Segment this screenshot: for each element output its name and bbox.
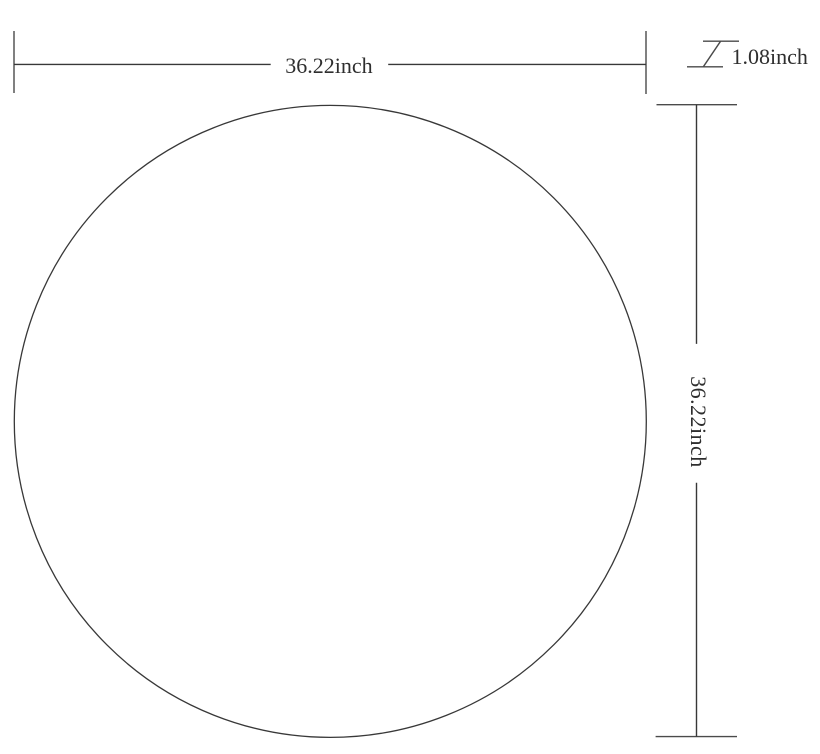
svg-text:36.22inch: 36.22inch: [686, 376, 711, 467]
svg-text:1.08inch: 1.08inch: [732, 44, 808, 69]
svg-text:36.22inch: 36.22inch: [285, 53, 372, 78]
